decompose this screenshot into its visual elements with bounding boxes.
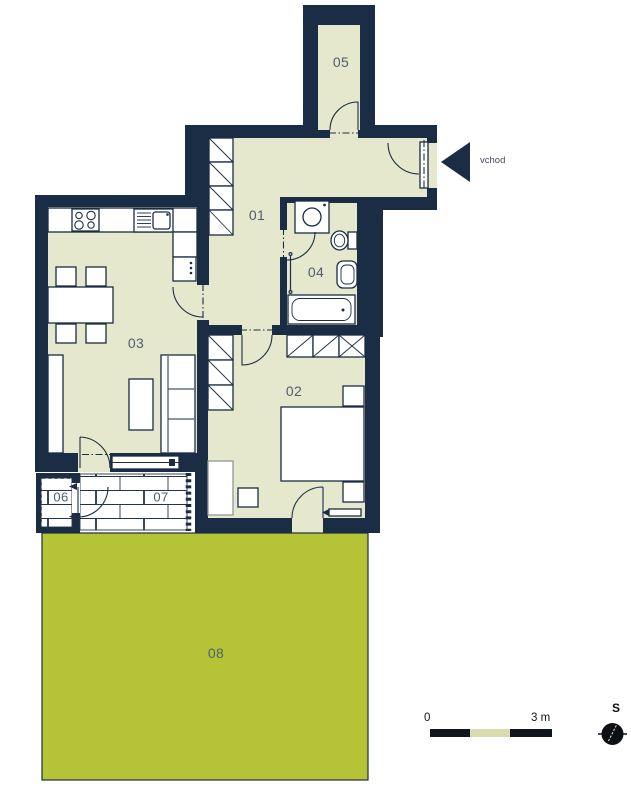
desk <box>208 461 233 515</box>
door-gap-terrace <box>78 453 110 472</box>
toilet-bowl-inner <box>334 234 344 247</box>
room-label-02: 02 <box>286 383 302 399</box>
compass-rose <box>598 723 627 745</box>
nightstand <box>343 386 364 406</box>
scale-segment-dark <box>510 729 552 737</box>
room-label-08: 08 <box>208 645 224 661</box>
dining-chair <box>56 267 76 286</box>
kitchen-tap <box>166 213 169 216</box>
scale-end-label: 3 m <box>531 712 550 724</box>
room-label-01: 01 <box>249 207 265 223</box>
bedroom-wardrobe-left <box>208 335 233 410</box>
scale-segment-dark <box>430 729 470 737</box>
dining-chair <box>56 324 76 343</box>
dining-chair <box>86 324 106 343</box>
toilet-tank <box>348 232 357 249</box>
desk-chair <box>238 488 258 507</box>
entrance-arrow-icon <box>441 142 470 182</box>
room-label-05: 05 <box>333 54 349 70</box>
room-label-03: 03 <box>128 335 144 351</box>
bed <box>281 407 364 481</box>
scale-start-label: 0 <box>424 712 430 724</box>
floor-room05 <box>318 25 360 130</box>
bedroom-radiator <box>329 509 361 516</box>
floor-plan: 05 01 04 03 02 06 07 08 vchod 0 3 m S <box>0 0 631 789</box>
coffee-table <box>129 379 153 430</box>
sofa <box>161 355 195 453</box>
dishwasher <box>173 257 196 281</box>
room-label-06: 06 <box>53 490 68 505</box>
scale-segment-light <box>470 729 510 737</box>
scale-bar <box>430 729 552 737</box>
compass-north-label: S <box>612 701 620 715</box>
washing-machine-knob <box>323 204 326 207</box>
dining-chair <box>86 267 106 286</box>
dishwasher-dots <box>190 262 193 275</box>
counter-column <box>173 232 197 257</box>
terrace07-paving <box>80 474 187 530</box>
room-label-04: 04 <box>308 264 324 280</box>
washing-machine-drum <box>303 208 321 226</box>
kitchen-counter <box>48 208 197 232</box>
plan-drawing <box>0 0 631 789</box>
hall-wardrobe <box>209 138 233 235</box>
nightstand <box>343 482 364 502</box>
door-gap-garden <box>292 518 323 533</box>
dining-table <box>48 287 113 323</box>
garden-lawn <box>42 533 368 780</box>
garden-area <box>42 533 368 780</box>
sideboard <box>48 355 63 453</box>
bedroom-wardrobe-top <box>287 335 365 357</box>
bathtub-drain <box>342 309 345 312</box>
window-marker <box>169 459 175 466</box>
entrance-label: vchod <box>480 155 505 166</box>
bathroom-sink-bowl <box>341 265 354 284</box>
room-label-07: 07 <box>153 490 168 505</box>
